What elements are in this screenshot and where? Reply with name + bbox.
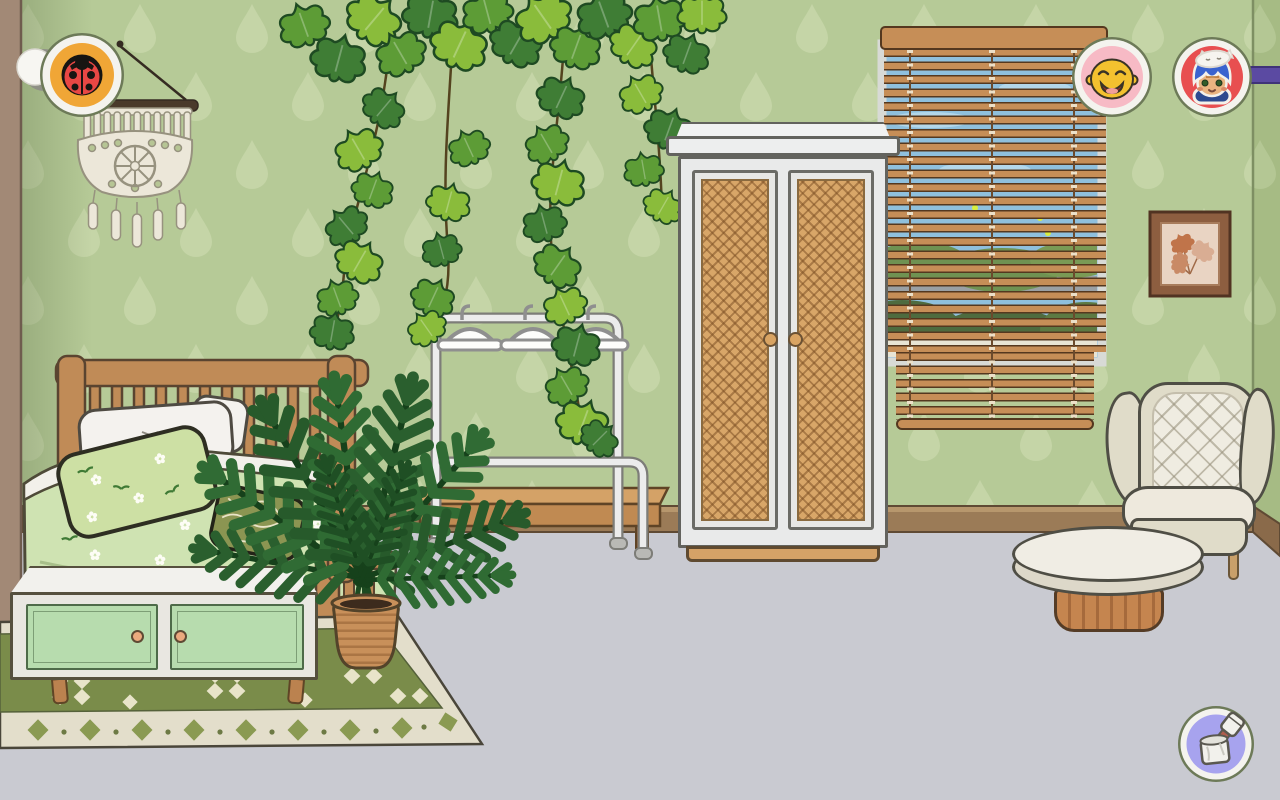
character-buttons (1066, 31, 1266, 126)
basket-pot (332, 595, 400, 668)
paint-button[interactable] (1178, 706, 1254, 782)
paint-button-group (1176, 704, 1256, 784)
character-button-blue-hair[interactable] (1172, 37, 1252, 117)
blue-hair-cat-hat-kid-icon (1194, 49, 1233, 103)
ladybug-button[interactable] (40, 33, 124, 117)
room-scene (0, 0, 1280, 800)
character-button-yellow-face[interactable] (1072, 37, 1152, 117)
ladybug-icon (62, 55, 103, 96)
table-top (1012, 526, 1204, 582)
ladybug-button-group (0, 30, 140, 130)
